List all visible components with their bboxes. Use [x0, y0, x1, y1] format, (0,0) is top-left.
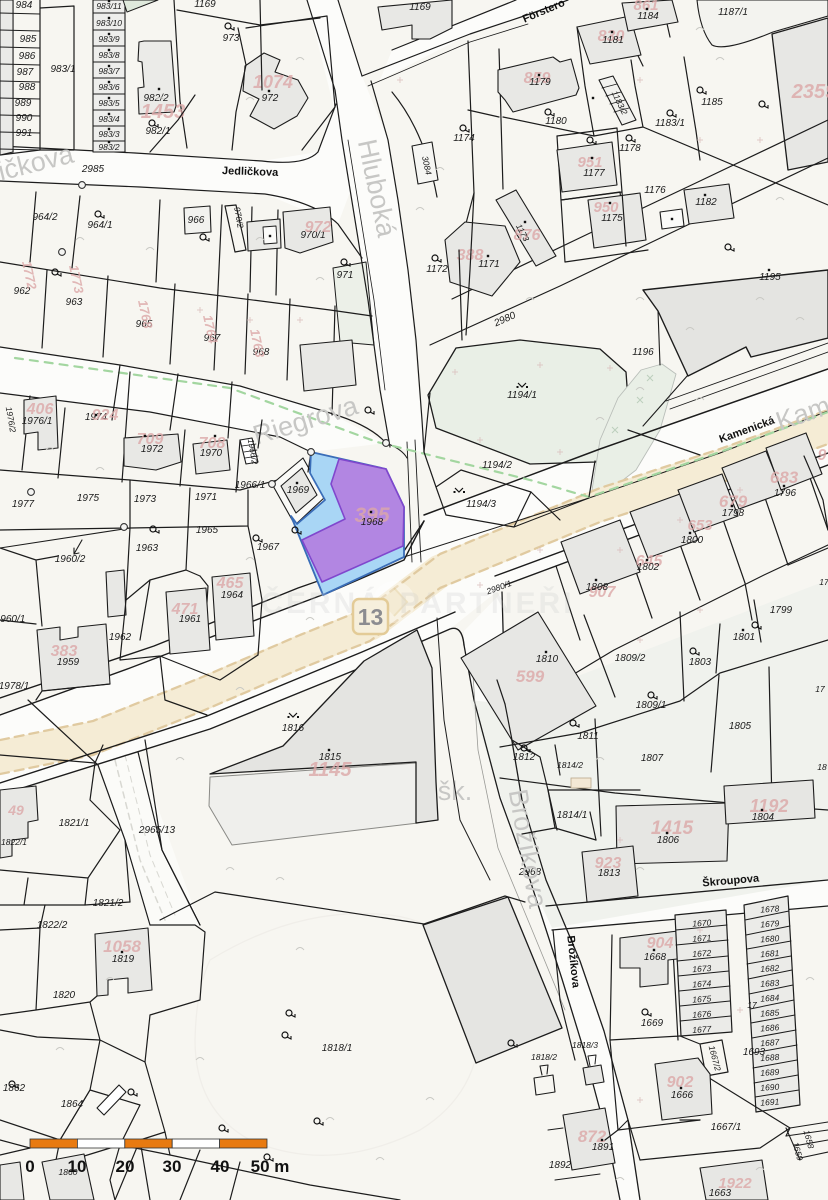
- svg-text:1801: 1801: [733, 632, 755, 643]
- svg-text:13: 13: [358, 604, 384, 630]
- svg-text:1187/1: 1187/1: [718, 7, 748, 18]
- svg-text:471: 471: [171, 601, 199, 618]
- svg-text:406: 406: [26, 401, 54, 418]
- svg-text:963: 963: [66, 297, 83, 308]
- svg-text:983/8: 983/8: [98, 50, 120, 60]
- svg-text:982/1: 982/1: [145, 126, 170, 137]
- svg-text:985: 985: [20, 34, 37, 45]
- svg-text:1682: 1682: [760, 963, 780, 974]
- svg-text:1814/1: 1814/1: [557, 810, 588, 821]
- svg-text:991: 991: [16, 128, 33, 139]
- svg-text:1180: 1180: [545, 116, 567, 127]
- svg-text:708: 708: [199, 435, 226, 452]
- svg-text:1803: 1803: [689, 657, 712, 668]
- svg-text:990: 990: [16, 113, 33, 124]
- svg-text:964/2: 964/2: [32, 212, 57, 223]
- svg-text:1668: 1668: [644, 952, 667, 963]
- svg-text:709: 709: [137, 431, 164, 448]
- svg-text:599: 599: [516, 667, 545, 686]
- svg-text:983/3: 983/3: [98, 129, 120, 139]
- svg-text:1810: 1810: [536, 654, 559, 665]
- svg-text:1677: 1677: [692, 1024, 712, 1035]
- svg-text:1667/1: 1667/1: [711, 1122, 742, 1133]
- svg-text:1807: 1807: [641, 753, 664, 764]
- svg-text:1673: 1673: [692, 963, 712, 974]
- svg-text:1175: 1175: [601, 213, 623, 224]
- svg-text:973: 973: [223, 33, 240, 44]
- svg-text:983/1: 983/1: [50, 64, 75, 75]
- svg-text:1977: 1977: [12, 499, 35, 510]
- svg-text:1811: 1811: [577, 731, 599, 742]
- svg-text:17: 17: [815, 684, 825, 694]
- svg-text:30: 30: [163, 1157, 182, 1176]
- svg-text:971: 971: [337, 270, 354, 281]
- svg-text:983/4: 983/4: [98, 114, 120, 124]
- svg-text:1960/2: 1960/2: [55, 554, 86, 565]
- svg-text:1181: 1181: [602, 35, 624, 46]
- svg-text:17: 17: [819, 577, 828, 587]
- svg-text:1174: 1174: [453, 133, 475, 144]
- svg-text:1676: 1676: [692, 1009, 712, 1020]
- svg-text:1184: 1184: [637, 11, 659, 22]
- svg-text:986: 986: [19, 51, 36, 62]
- svg-text:1670: 1670: [692, 917, 712, 928]
- svg-text:1169: 1169: [409, 2, 431, 13]
- svg-text:1967: 1967: [257, 542, 280, 553]
- svg-text:1685: 1685: [760, 1007, 780, 1018]
- svg-text:1973: 1973: [134, 494, 157, 505]
- svg-text:983/7: 983/7: [98, 66, 120, 76]
- svg-text:1179: 1179: [529, 77, 551, 88]
- svg-text:1182: 1182: [695, 197, 717, 208]
- svg-text:1177: 1177: [583, 168, 605, 179]
- svg-text:1194/3: 1194/3: [466, 499, 496, 510]
- svg-text:50 m: 50 m: [251, 1157, 290, 1176]
- svg-text:1821/2: 1821/2: [93, 898, 124, 909]
- svg-text:1176: 1176: [644, 185, 666, 196]
- svg-text:1194/1: 1194/1: [507, 390, 537, 401]
- svg-text:653: 653: [687, 517, 713, 534]
- svg-text:1683: 1683: [760, 978, 780, 989]
- svg-text:1809/2: 1809/2: [615, 653, 646, 664]
- svg-text:1178: 1178: [619, 143, 641, 154]
- svg-text:983/6: 983/6: [98, 82, 120, 92]
- svg-text:1145: 1145: [308, 759, 352, 781]
- svg-text:1690: 1690: [760, 1082, 780, 1093]
- svg-text:1820: 1820: [53, 990, 76, 1001]
- svg-text:2359: 2359: [791, 81, 828, 103]
- svg-text:964/1: 964/1: [87, 220, 112, 231]
- svg-text:1666: 1666: [671, 1090, 694, 1101]
- svg-text:1681: 1681: [760, 948, 780, 959]
- svg-text:1196: 1196: [632, 347, 654, 358]
- svg-text:1183/1: 1183/1: [655, 118, 685, 129]
- svg-text:Jedličkova: Jedličkova: [222, 165, 280, 179]
- svg-text:1680: 1680: [760, 933, 780, 944]
- svg-text:1169: 1169: [194, 0, 216, 10]
- svg-text:1864: 1864: [61, 1099, 84, 1110]
- svg-text:18: 18: [817, 762, 827, 772]
- svg-text:10: 10: [68, 1157, 87, 1176]
- svg-text:2965/13: 2965/13: [138, 825, 176, 836]
- svg-text:PARTNEŘI: PARTNEŘI: [399, 586, 574, 620]
- svg-text:904: 904: [647, 935, 674, 952]
- svg-text:1821/1: 1821/1: [59, 818, 90, 829]
- svg-text:966: 966: [188, 215, 205, 226]
- svg-text:988: 988: [19, 82, 36, 93]
- svg-text:1671: 1671: [692, 933, 712, 944]
- svg-text:989: 989: [15, 98, 32, 109]
- svg-text:1691: 1691: [760, 1096, 780, 1107]
- svg-text:1818/3: 1818/3: [572, 1040, 598, 1050]
- svg-text:1194/2: 1194/2: [482, 460, 512, 471]
- svg-text:1965: 1965: [196, 525, 219, 536]
- svg-text:1800: 1800: [681, 535, 704, 546]
- svg-text:683: 683: [770, 468, 799, 487]
- svg-text:1693: 1693: [743, 1047, 766, 1058]
- svg-text:1891: 1891: [592, 1142, 614, 1153]
- svg-text:1074: 1074: [253, 72, 293, 92]
- svg-text:1684: 1684: [760, 992, 780, 1003]
- svg-text:1679: 1679: [760, 918, 780, 929]
- svg-text:972: 972: [305, 219, 332, 236]
- svg-text:1806: 1806: [657, 835, 680, 846]
- svg-text:1058: 1058: [103, 937, 141, 956]
- svg-text:2985: 2985: [81, 164, 105, 175]
- svg-text:983/11: 983/11: [96, 1, 122, 11]
- svg-text:40: 40: [211, 1157, 230, 1176]
- svg-text:1818/1: 1818/1: [322, 1043, 353, 1054]
- svg-text:983/9: 983/9: [98, 34, 120, 44]
- svg-text:17: 17: [747, 1000, 757, 1010]
- svg-text:1978/1: 1978/1: [0, 681, 29, 692]
- svg-text:1812: 1812: [513, 752, 536, 763]
- svg-text:1689: 1689: [760, 1067, 780, 1078]
- svg-text:9: 9: [818, 447, 827, 464]
- svg-text:1663: 1663: [709, 1188, 732, 1199]
- svg-text:984: 984: [16, 0, 33, 11]
- svg-text:1960/1: 1960/1: [0, 614, 25, 625]
- svg-text:1813: 1813: [598, 868, 621, 879]
- svg-text:1969: 1969: [287, 485, 310, 496]
- svg-text:1962: 1962: [109, 632, 132, 643]
- svg-text:1672: 1672: [692, 948, 712, 959]
- svg-text:1862: 1862: [3, 1083, 26, 1094]
- svg-text:1975: 1975: [77, 493, 100, 504]
- svg-text:983/5: 983/5: [98, 98, 120, 108]
- svg-text:1804: 1804: [752, 812, 775, 823]
- svg-text:383: 383: [51, 643, 78, 660]
- svg-text:987: 987: [17, 67, 34, 78]
- svg-text:1816: 1816: [282, 723, 305, 734]
- svg-text:972: 972: [262, 93, 279, 104]
- svg-text:0: 0: [25, 1157, 34, 1176]
- svg-text:1686: 1686: [760, 1022, 780, 1033]
- svg-text:1678: 1678: [760, 903, 780, 914]
- svg-text:20: 20: [116, 1157, 135, 1176]
- svg-text:1195: 1195: [759, 272, 781, 283]
- svg-text:1185: 1185: [701, 97, 723, 108]
- svg-text:1971: 1971: [195, 492, 217, 503]
- svg-text:1669: 1669: [641, 1018, 664, 1029]
- svg-text:1171: 1171: [478, 259, 500, 270]
- svg-text:1674: 1674: [692, 978, 712, 989]
- svg-text:1796: 1796: [774, 488, 797, 499]
- svg-text:1172: 1172: [426, 264, 448, 275]
- svg-text:983/10: 983/10: [96, 18, 122, 28]
- svg-text:1798: 1798: [722, 508, 745, 519]
- svg-text:1808: 1808: [586, 582, 609, 593]
- svg-text:1892: 1892: [549, 1160, 572, 1171]
- svg-text:1963: 1963: [136, 543, 159, 554]
- svg-text:1809/1: 1809/1: [636, 700, 667, 711]
- svg-text:1802: 1802: [637, 562, 660, 573]
- svg-text:49: 49: [7, 802, 24, 818]
- svg-text:1675: 1675: [692, 993, 712, 1004]
- svg-text:1805: 1805: [729, 721, 752, 732]
- svg-text:1799: 1799: [770, 605, 793, 616]
- svg-text:1968: 1968: [361, 517, 384, 528]
- svg-text:1814/2: 1814/2: [557, 760, 583, 770]
- svg-text:1822/1: 1822/1: [1, 837, 27, 847]
- svg-text:983/2: 983/2: [98, 142, 120, 152]
- svg-text:1966/1: 1966/1: [235, 480, 266, 491]
- svg-text:465: 465: [216, 575, 245, 592]
- svg-text:1818/2: 1818/2: [531, 1052, 557, 1062]
